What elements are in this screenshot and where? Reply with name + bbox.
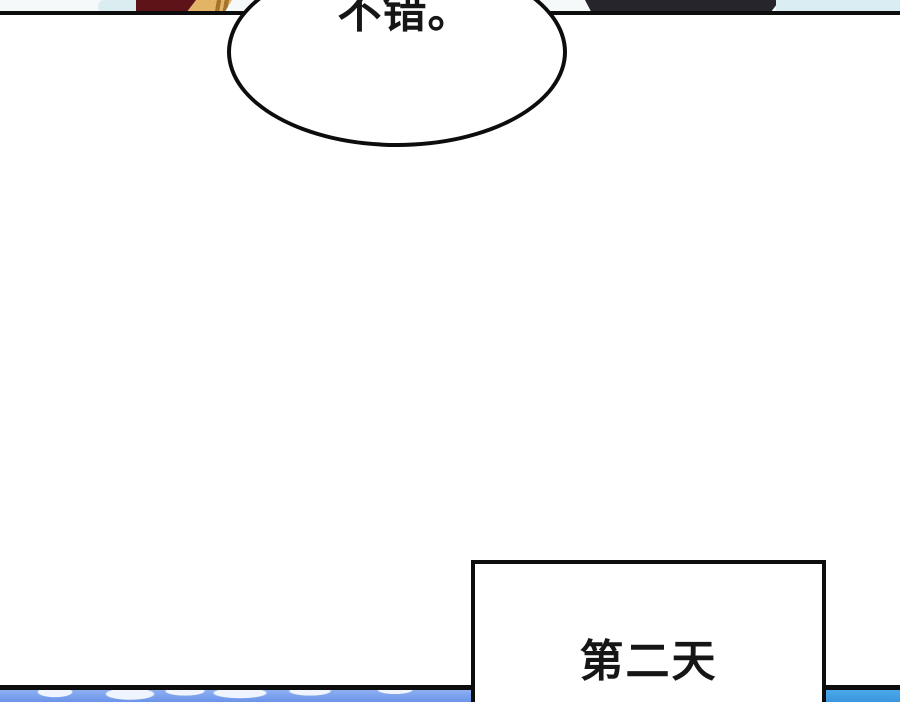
caption-box: 第二天 bbox=[471, 560, 826, 702]
comic-page: 不错。 第二天 bbox=[0, 0, 900, 702]
caption-text: 第二天 bbox=[475, 638, 822, 686]
speech-bubble-text: 不错。 bbox=[255, 0, 555, 36]
